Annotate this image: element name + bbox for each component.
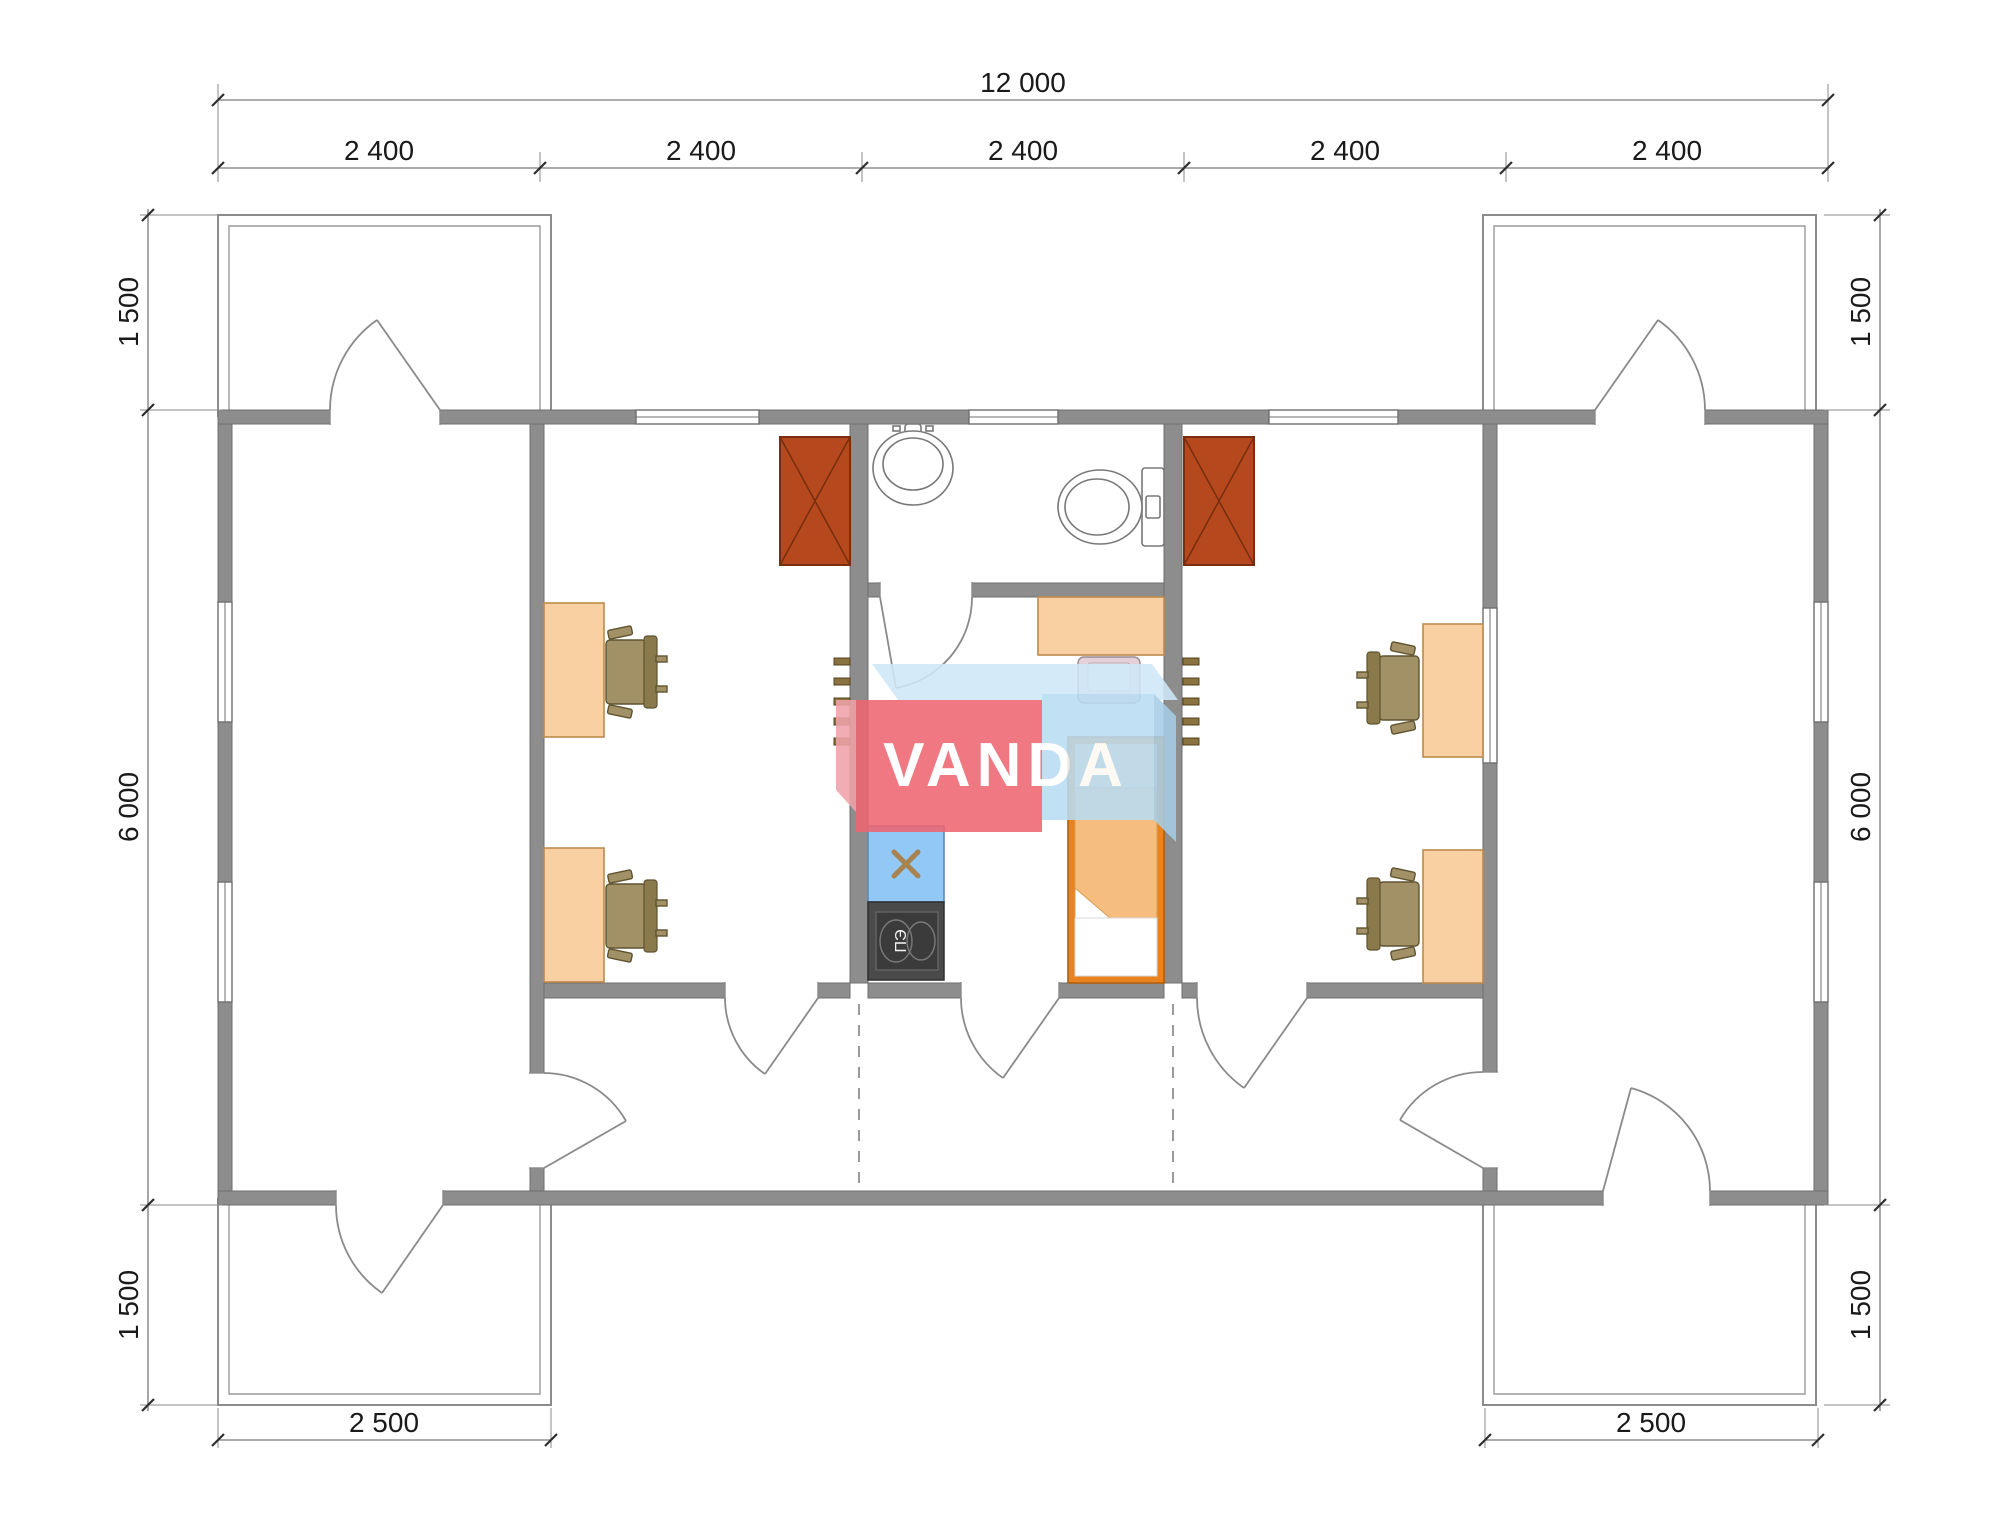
dim-right-terrace-top: 1 500 [1845,277,1876,347]
desk[interactable] [544,848,604,982]
office-chair[interactable] [1357,868,1419,961]
desk[interactable] [1423,624,1483,757]
coat-hooks[interactable] [1183,658,1199,745]
window-top-bathroom [969,410,1058,424]
dim-left-terrace-bottom: 1 500 [113,1270,144,1340]
door-module1-terrace-bottom [336,1205,443,1293]
stove-label: ПЭ [893,930,910,953]
logo-text: VANDA [883,731,1129,800]
terrace-bottom-right [1483,1198,1816,1405]
outer-wall-right [1814,424,1828,1191]
dim-left-terrace-top: 1 500 [113,277,144,347]
outer-wall-bottom [218,1191,1828,1205]
toilet[interactable] [1058,468,1164,546]
terrace-bottom-left [218,1198,551,1405]
dim-bottom-left-terrace: 2 500 [349,1407,419,1438]
door-module5-terrace-top [1595,320,1705,410]
door-module4-hall [1197,998,1307,1088]
window-top-module4 [1269,410,1398,424]
dim-right-terrace-bottom: 1 500 [1845,1270,1876,1340]
window-interior-module4-module5 [1483,608,1497,763]
door-module5-hall [1400,1072,1483,1168]
office-chair[interactable] [1357,642,1419,735]
floor-plan-canvas: ПЭ [0,0,2000,1524]
door-module1-terrace-top [330,320,440,410]
dim-segment: 2 400 [1310,135,1380,166]
electric-stove[interactable]: ПЭ [868,902,944,980]
dim-top-total: 12 000 [980,67,1066,98]
desk[interactable] [1423,850,1483,983]
dim-left-main: 6 000 [113,772,144,842]
kitchen-sink-counter[interactable] [868,826,944,902]
outer-wall-left [218,424,232,1191]
dim-segment: 2 400 [666,135,736,166]
desk[interactable] [1038,597,1164,655]
desk[interactable] [544,603,604,737]
terrace-top-left [218,215,551,417]
window-right-lower [1814,882,1828,1002]
dim-segment: 2 400 [1632,135,1702,166]
door-module1-hall [544,1073,626,1168]
floor-plan: ПЭ [0,0,2000,1524]
door-module2-hall [725,998,818,1074]
door-module5-terrace-bottom [1603,1088,1710,1191]
office-chair[interactable] [606,870,667,963]
window-top-module2 [636,410,759,424]
window-left-lower [218,882,232,1002]
dim-segment: 2 400 [344,135,414,166]
wardrobe[interactable] [780,437,850,565]
bathroom-sink[interactable] [873,424,953,505]
vanda-watermark: VANDA [836,664,1178,842]
dim-bottom-right-terrace: 2 500 [1616,1407,1686,1438]
window-right-upper [1814,602,1828,722]
office-chair[interactable] [606,626,667,719]
dim-right-main: 6 000 [1845,772,1876,842]
door-module3-hall [961,998,1059,1078]
terrace-top-right [1483,215,1816,417]
wardrobe[interactable] [1184,437,1254,565]
wall-module3-module4 [1164,424,1182,983]
dim-segment: 2 400 [988,135,1058,166]
window-left-upper [218,602,232,722]
